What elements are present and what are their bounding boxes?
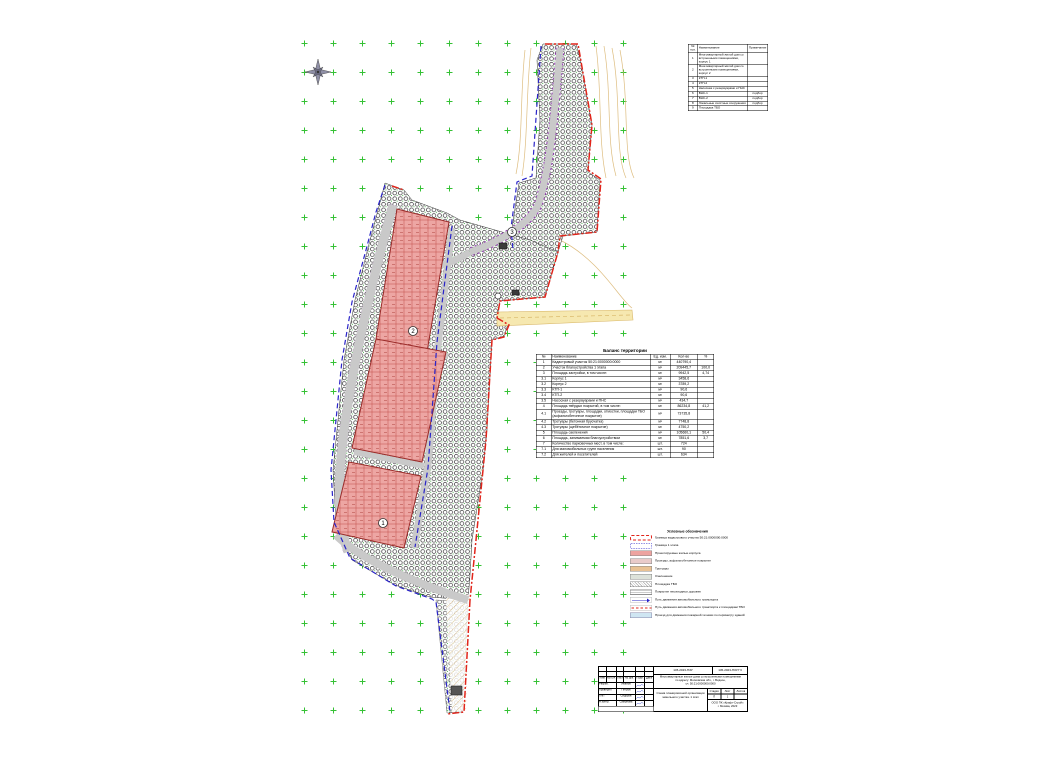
legend-item-label: Покрытие пешеходных дорожек (655, 590, 701, 594)
drawing-sheet: 123 № поз. Наименование Примечание 1Мног… (0, 0, 1047, 768)
ktp-1-structure (499, 243, 507, 249)
positions-col-num: № поз. (688, 44, 697, 52)
table-row: 2Многоквартирный жилой дом со встроенным… (688, 64, 768, 76)
doc-code-secondary: 145-2023-ПЗУ.ГЧ (713, 667, 748, 675)
fill-gray-swatch-icon (630, 574, 652, 580)
balance-cell: 634 (670, 452, 698, 458)
legend-item-label: Путь движения автомобильного транспорта (655, 598, 718, 602)
signature-scribble (636, 701, 645, 707)
table-row: 7.2Для жителей и посетителейшт.634 (536, 452, 714, 458)
balance-table-panel: Баланс территории №НаименованиеЕд. изм.К… (536, 348, 714, 458)
table-row: 1Многоквартирный жилой дом со встроенным… (688, 53, 768, 65)
project-description: Многоквартирные жилые дома со встроенным… (654, 675, 748, 689)
legend-item-label: Проектируемые жилые корпуса (655, 551, 700, 555)
position-name: Многоквартирный жилой дом со встроенными… (697, 64, 747, 76)
table-row: 9Площадка ТБО (688, 106, 768, 111)
legend-item: Проезд для движения пожарной техники по … (630, 613, 745, 619)
legend-item: Тротуары (630, 566, 745, 572)
blue-arrow-swatch-icon (630, 597, 652, 603)
position-marker: 1 (379, 519, 388, 528)
legend-item: Граница 1 этапа (630, 543, 745, 549)
legend-item: Площадка ТБО (630, 582, 745, 588)
balance-cell (698, 452, 714, 458)
legend-item-label: Граница 1 этапа (655, 544, 678, 548)
fill-lightblue-swatch-icon (630, 613, 652, 619)
fill-tan-swatch-icon (630, 566, 652, 572)
position-name: Площадка ТБО (697, 106, 747, 111)
legend-item: Граница кадастрового участка 50:21:00000… (630, 535, 745, 541)
table-header-row: № поз. Наименование Примечание (688, 44, 768, 52)
balance-cell: Для жителей и посетителей (551, 452, 650, 458)
balance-table-title: Баланс территории (536, 348, 714, 353)
legend-panel: Условные обозначения Граница кадастровог… (630, 530, 745, 620)
site-plan-map: 123 (0, 0, 1047, 768)
title-block-info: 145-2023-ПЗУ 145-2023-ПЗУ.ГЧ Многокварти… (654, 667, 748, 712)
doc-code: 145-2023-ПЗУ (654, 667, 713, 675)
legend-item-label: Тротуары (655, 567, 669, 571)
red-dash-line-swatch-icon (630, 605, 652, 611)
legend-item: Проектируемые жилые корпуса (630, 551, 745, 557)
balance-cell: 4.1 (536, 409, 551, 419)
fill-pink-swatch-icon (630, 551, 652, 557)
position-marker: 2 (409, 327, 418, 336)
position-name: Многоквартирный жилой дом со встроенными… (697, 53, 747, 65)
title-block-signatures: Изм.Кол.уч.Лист№ док.Подп.Дата Разраб.Ив… (599, 667, 654, 712)
legend-item: Покрытие пешеходных дорожек (630, 589, 745, 595)
legend-item-label: Площадка ТБО (655, 582, 677, 586)
legend-item: Озеленение (630, 574, 745, 580)
balance-table: №НаименованиеЕд. изм.Кол-во% 1Кадастровы… (536, 354, 714, 458)
legend-item: Путь движения автомобильного транспорта (630, 597, 745, 603)
lines-dots-swatch-icon (630, 589, 652, 595)
tank-structure (495, 293, 501, 299)
balance-cell: 73735,8 (670, 409, 698, 419)
blue-dashed-rect-swatch-icon (630, 543, 652, 549)
positions-col-name: Наименование (697, 44, 747, 52)
positions-table-panel: № поз. Наименование Примечание 1Многоква… (688, 44, 768, 111)
legend-item-label: Граница кадастрового участка 50:21:00000… (655, 536, 728, 540)
balance-cell (698, 409, 714, 419)
position-note (747, 106, 767, 111)
position-note (747, 64, 767, 76)
red-dashed-rect-swatch-icon (630, 535, 652, 541)
position-marker: 3 (508, 228, 517, 237)
position-number: 9 (688, 106, 697, 111)
position-number: 1 (688, 53, 697, 65)
fill-rose-swatch-icon (630, 558, 652, 564)
sheet-title: Схема планировочной организацииземельног… (654, 689, 708, 712)
positions-table: № поз. Наименование Примечание 1Многоква… (688, 44, 768, 111)
ktp-2-structure (512, 290, 519, 295)
legend-title: Условные обозначения (630, 530, 745, 534)
legend-item-label: Озеленение (655, 575, 673, 579)
table-row: 4.1Проезды, тротуары, площадки, отмостки… (536, 409, 714, 419)
sig-name: Смирнова (617, 701, 636, 707)
sig-role: Н.контр. (599, 701, 617, 707)
legend-item: Проезды, асфальтобетонное покрытие (630, 558, 745, 564)
hatch-diag-swatch-icon (630, 582, 652, 588)
pump-station-structure (451, 686, 462, 695)
balance-cell: Проезды, тротуары, площадки, отмостки, п… (551, 409, 650, 419)
legend-item-label: Проезд для движения пожарной техники по … (655, 613, 745, 617)
positions-col-note: Примечание (747, 44, 767, 52)
title-block-panel: Изм.Кол.уч.Лист№ док.Подп.Дата Разраб.Ив… (598, 666, 748, 712)
title-block: Изм.Кол.уч.Лист№ док.Подп.Дата Разраб.Ив… (598, 666, 748, 712)
balance-cell: 7.2 (536, 452, 551, 458)
position-number: 2 (688, 64, 697, 76)
sig-date (645, 701, 654, 707)
legend-item: Путь движения автомобильного транспорта … (630, 605, 745, 611)
company-name: ООО ПК «Крафт-Строй»г. Москва, 2023 (708, 700, 748, 712)
legend-item-label: Проезды, асфальтобетонное покрытие (655, 559, 711, 563)
balance-cell: м² (650, 409, 670, 419)
position-note (747, 53, 767, 65)
legend-item-label: Путь движения автомобильного транспорта … (655, 606, 745, 610)
signature-row: Н.контр.Смирнова (599, 701, 654, 707)
balance-cell: шт. (650, 452, 670, 458)
